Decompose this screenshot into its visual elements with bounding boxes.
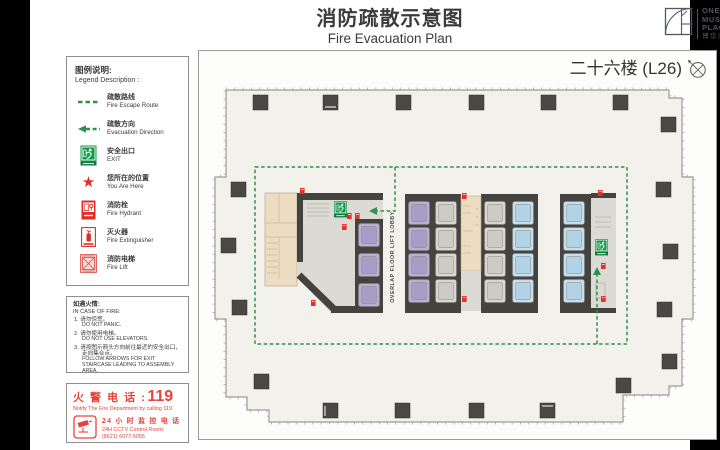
legend-item-escape-route: 疏散路线Fire Escape Route — [75, 88, 182, 115]
legend-item-exit: 安全出口EXIT — [75, 142, 182, 169]
evacuation-direction-icon — [75, 124, 102, 134]
legend-items: 疏散路线Fire Escape Route 疏散方向Evacuation Dir… — [75, 88, 182, 277]
title-english: Fire Evacuation Plan — [60, 31, 720, 46]
legend-heading-zh: 图例说明: — [75, 64, 182, 76]
title-chinese: 消防疏散示意图 — [60, 2, 720, 31]
cctv-camera-icon — [73, 415, 97, 444]
fire-hydrant-icon — [75, 200, 102, 220]
legend-item-you-are-here: ★ 您所在的位置You Are Here — [75, 169, 182, 196]
middle-core — [405, 194, 538, 313]
legend-item-evacuation-direction: 疏散方向Evacuation Direction — [75, 115, 182, 142]
floor-plan-drawing: OVERLAP FLOOR LIFT LOBBY — [199, 51, 716, 439]
you-are-here-star-icon: ★ — [75, 175, 102, 190]
lift-lobby-label: OVERLAP FLOOR LIFT LOBBY — [390, 211, 396, 303]
floor-plan-panel: 二十六楼 (L26) — [198, 50, 717, 440]
legend-item-fire-lift: 消防电梯Fire Lift — [75, 250, 182, 277]
page-title: 消防疏散示意图 Fire Evacuation Plan — [60, 2, 720, 46]
fire-phone-number: 火 警 电 话 : 119 — [73, 388, 184, 406]
logo-text: ONE MUSEUM PLACE 博华广场 — [702, 7, 720, 40]
legend-panel: 图例说明: Legend Description : 疏散路线Fire Esca… — [66, 56, 189, 286]
exit-sign-icon — [75, 145, 102, 166]
legend-heading-en: Legend Description : — [75, 77, 182, 84]
pantry-area — [461, 196, 481, 271]
cctv-contact: 24 小 时 监 控 电 话 24H CCTV Control Room: (8… — [73, 415, 184, 444]
fire-case-item-1: 1. 请勿惊慌。 DO NOT PANIC. — [73, 317, 184, 329]
golden-spiral-logo-icon — [664, 7, 694, 42]
page-content: 消防疏散示意图 Fire Evacuation Plan ONE MUSEUM … — [30, 0, 690, 450]
fire-phone-panel: 火 警 电 话 : 119 Notify The Fire Department… — [66, 383, 189, 443]
fire-lift-icon — [75, 254, 102, 273]
right-core — [560, 193, 616, 313]
fire-phone-note: Notify The Fire Department by calling 11… — [73, 406, 184, 412]
fire-extinguisher-icon — [75, 227, 102, 247]
legend-item-fire-hydrant: 消防栓Fire Hydrant — [75, 196, 182, 223]
logo-divider — [697, 9, 698, 39]
one-museum-place-logo: ONE MUSEUM PLACE 博华广场 — [664, 5, 720, 43]
fire-case-heading-en: IN CASE OF FIRE: — [73, 309, 184, 315]
legend-item-fire-extinguisher: 灭火器Fire Extinguisher — [75, 223, 182, 250]
fire-case-item-2: 2. 请勿使用电梯。 DO NOT USE ELEVATORS. — [73, 331, 184, 343]
in-case-of-fire-panel: 如遇火情: IN CASE OF FIRE: 1. 请勿惊慌。 DO NOT P… — [66, 296, 189, 373]
restroom-area — [265, 193, 297, 286]
fire-case-heading-zh: 如遇火情: — [73, 302, 184, 309]
fire-case-item-3: 3. 请按图示箭头方向前往最近的安全出口，走向集合点。 FOLLOW ARROW… — [73, 345, 184, 375]
exit-sign — [595, 239, 608, 255]
fire-escape-route-icon — [75, 98, 102, 106]
exit-sign — [334, 201, 347, 217]
